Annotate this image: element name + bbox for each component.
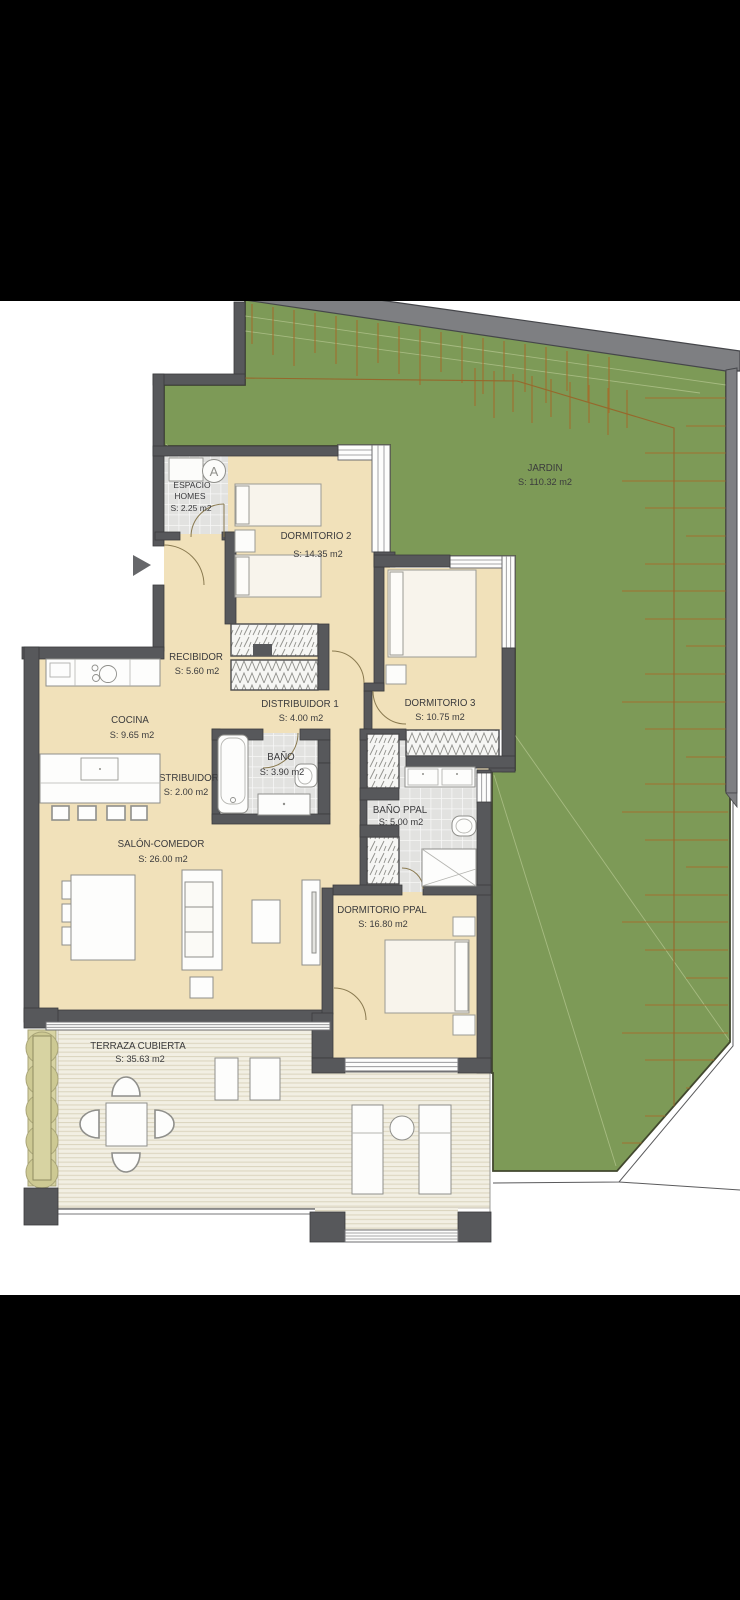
svg-text:BAÑO: BAÑO — [267, 752, 295, 763]
svg-text:S: 2.25 m2: S: 2.25 m2 — [170, 503, 211, 513]
svg-text:DISTRIBUIDOR 1: DISTRIBUIDOR 1 — [261, 699, 339, 710]
svg-text:SALÓN-COMEDOR: SALÓN-COMEDOR — [118, 839, 205, 850]
svg-text:DORMITORIO 2: DORMITORIO 2 — [281, 531, 352, 542]
svg-text:A: A — [210, 464, 219, 479]
svg-text:S: 16.80 m2: S: 16.80 m2 — [358, 919, 408, 929]
svg-text:DORMITORIO PPAL: DORMITORIO PPAL — [337, 905, 427, 916]
svg-text:S: 2.00 m2: S: 2.00 m2 — [164, 787, 208, 797]
svg-text:COCINA: COCINA — [111, 715, 149, 726]
svg-text:TERRAZA CUBIERTA: TERRAZA CUBIERTA — [90, 1041, 186, 1052]
svg-text:DORMITORIO 3: DORMITORIO 3 — [405, 698, 476, 709]
svg-text:S: 14.35 m2: S: 14.35 m2 — [293, 549, 343, 559]
svg-text:S: 3.90 m2: S: 3.90 m2 — [260, 767, 304, 777]
svg-text:S: 26.00 m2: S: 26.00 m2 — [138, 854, 188, 864]
svg-text:S: 4.00 m2: S: 4.00 m2 — [279, 713, 323, 723]
svg-text:ESPACIO: ESPACIO — [173, 480, 211, 490]
svg-text:HOMES: HOMES — [174, 491, 206, 501]
svg-text:S: 5.00 m2: S: 5.00 m2 — [379, 817, 423, 827]
svg-text:JARDIN: JARDIN — [528, 463, 563, 474]
svg-text:S: 110.32 m2: S: 110.32 m2 — [518, 477, 572, 487]
svg-text:S: 5.60 m2: S: 5.60 m2 — [175, 666, 219, 676]
svg-text:S: 9.65 m2: S: 9.65 m2 — [110, 730, 154, 740]
svg-text:S: 35.63 m2: S: 35.63 m2 — [115, 1054, 165, 1064]
svg-text:S: 10.75 m2: S: 10.75 m2 — [415, 712, 465, 722]
svg-text:BAÑO PPAL: BAÑO PPAL — [373, 805, 428, 816]
svg-text:RECIBIDOR: RECIBIDOR — [169, 652, 223, 663]
